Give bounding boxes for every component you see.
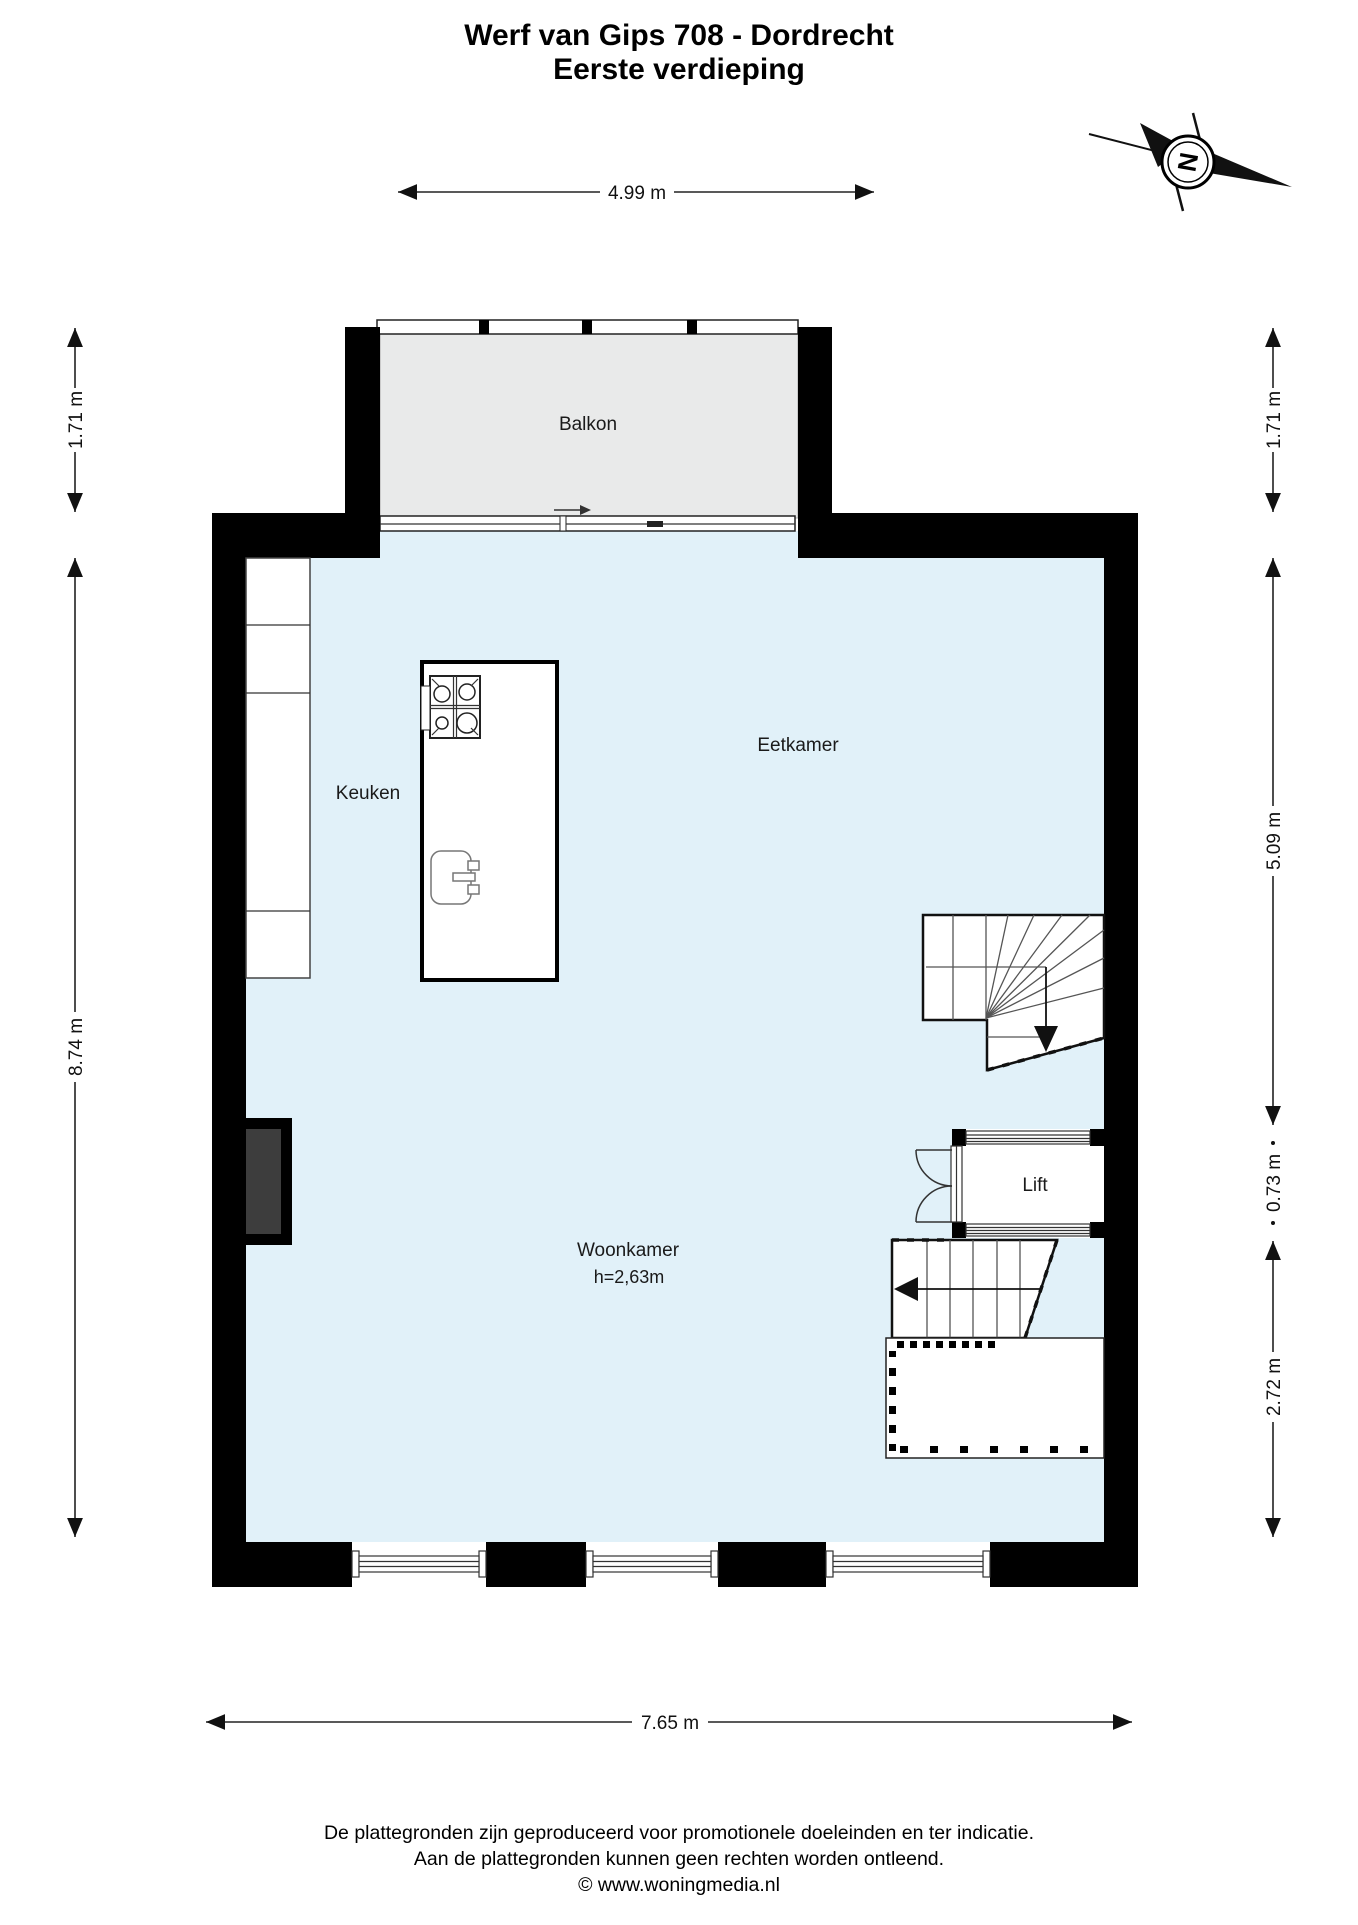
svg-text:7.65 m: 7.65 m: [641, 1713, 699, 1734]
dimension-left-room: 8.74 m: [66, 558, 87, 1537]
svg-text:De plattegronden zijn geproduc: De plattegronden zijn geproduceerd voor …: [324, 1822, 1034, 1844]
stairwell-void: [886, 1338, 1104, 1458]
dimension-top-width: 4.99 m: [398, 183, 874, 204]
svg-text:8.74 m: 8.74 m: [66, 1018, 87, 1076]
ceiling-height-label: h=2,63m: [594, 1267, 665, 1287]
footer-disclaimer: De plattegronden zijn geproduceerd voor …: [324, 1822, 1034, 1896]
svg-text:Aan de plattegronden kunnen ge: Aan de plattegronden kunnen geen rechten…: [414, 1848, 944, 1870]
stove-icon: [421, 676, 480, 738]
windows: [352, 1551, 990, 1577]
dimension-bottom-width: 7.65 m: [206, 1713, 1132, 1734]
page-title: Werf van Gips 708 - Dordrecht: [464, 19, 894, 52]
page-subtitle: Eerste verdieping: [553, 53, 805, 86]
compass-icon: N: [1089, 113, 1292, 211]
dining-room-label: Eetkamer: [757, 735, 839, 756]
window: [352, 1551, 486, 1577]
floor-plan-canvas: Werf van Gips 708 - Dordrecht Eerste ver…: [0, 0, 1358, 1920]
kitchen-island: [421, 662, 557, 980]
copyright-credit: © www.woningmedia.nl: [578, 1874, 780, 1896]
dimension-right-lift: 0.73 m: [1264, 1141, 1285, 1225]
dimension-right-lower: 2.72 m: [1264, 1241, 1285, 1537]
svg-text:4.99 m: 4.99 m: [608, 183, 666, 204]
balcony: Balkon: [377, 320, 798, 531]
balcony-label: Balkon: [559, 414, 617, 435]
kitchen-label: Keuken: [336, 783, 400, 804]
dimension-right-upper: 5.09 m: [1264, 558, 1285, 1125]
kitchen-counter: [246, 558, 310, 978]
window: [826, 1551, 990, 1577]
svg-text:5.09 m: 5.09 m: [1264, 812, 1285, 870]
svg-text:1.71 m: 1.71 m: [66, 391, 87, 449]
dimension-left-balcony: 1.71 m: [66, 328, 87, 512]
dimension-right-balcony: 1.71 m: [1264, 328, 1285, 512]
svg-text:1.71 m: 1.71 m: [1264, 391, 1285, 449]
svg-text:0.73 m: 0.73 m: [1264, 1154, 1285, 1212]
lift-label: Lift: [1022, 1175, 1048, 1196]
window: [586, 1551, 718, 1577]
svg-text:2.72 m: 2.72 m: [1264, 1358, 1285, 1416]
fireplace-shaft: [243, 1118, 292, 1245]
living-room-label: Woonkamer: [577, 1240, 680, 1261]
